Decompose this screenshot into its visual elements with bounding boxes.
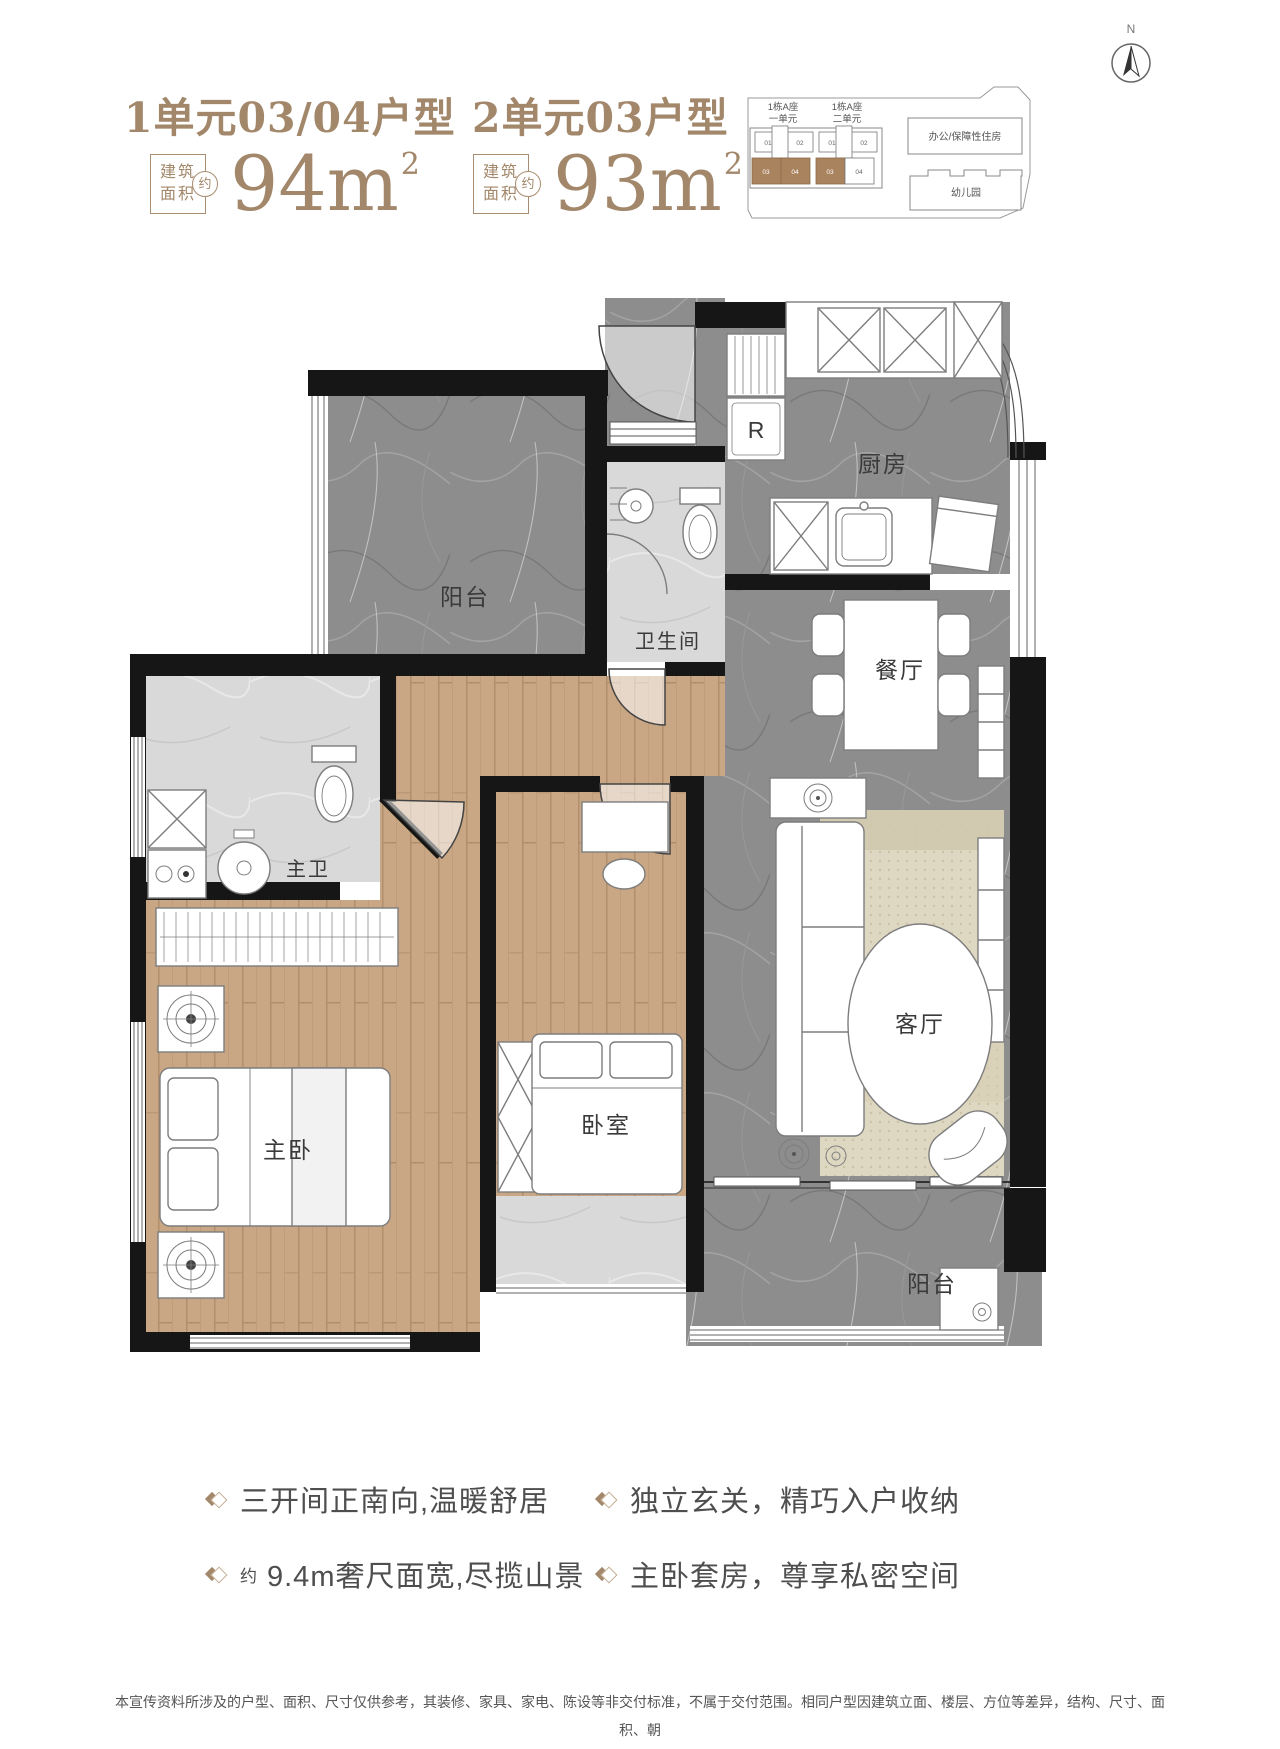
label-living: 客厅 xyxy=(895,1011,945,1037)
label-balcony-top: 阳台 xyxy=(440,584,490,610)
kindergarten-block-label: 幼儿园 xyxy=(951,186,981,199)
u2-cell-01: 01 xyxy=(828,140,836,147)
floorplan-page: 1单元03/04户型 2单元03户型 建筑 面积 约 94m2 建筑 面积 约 … xyxy=(0,0,1280,1749)
sup-2: 2 xyxy=(401,147,420,182)
unit1-block-label2: 一单元 xyxy=(769,113,798,125)
toilet xyxy=(683,505,717,559)
u1-cell-03: 03 xyxy=(762,169,770,176)
laundry-unit xyxy=(148,850,206,898)
desk xyxy=(582,802,668,852)
disclaimer-line2: 向及室内布局可能存在不同，最终以政府审批文件及双方签订的买卖合同及附件为准。本公… xyxy=(110,1744,1170,1749)
toilet xyxy=(315,766,353,822)
u1-cell-04: 04 xyxy=(791,169,799,176)
diamond-bullet-icon xyxy=(207,1491,225,1508)
pillow xyxy=(610,1042,672,1078)
dining-chair xyxy=(938,614,970,656)
unit2-block-label2: 二单元 xyxy=(833,113,862,125)
vanity-sink xyxy=(218,842,270,894)
feature-item: 主卧套房，尊享私密空间 xyxy=(597,1553,960,1595)
dishwasher xyxy=(930,496,999,572)
toilet-tank xyxy=(312,746,356,762)
diamond-bullet-icon xyxy=(597,1491,615,1508)
u2-cell-04: 04 xyxy=(855,169,863,176)
feature-text: 主卧套房，尊享私密空间 xyxy=(630,1553,960,1595)
label-master-bath: 主卫 xyxy=(286,858,330,881)
sup-2: 2 xyxy=(724,147,743,182)
shoe-cabinet xyxy=(727,334,785,396)
label-bedroom: 卧室 xyxy=(581,1112,631,1138)
floorplan-svg: 阳台 卫生间 厨房 R 餐厅 主卫 主卧 卧室 客厅 阳台 xyxy=(130,282,1050,1352)
label-balcony-bottom: 阳台 xyxy=(907,1271,957,1297)
toilet-tank xyxy=(680,488,720,504)
area-label-box: 建筑 面积 约 xyxy=(473,154,529,214)
site-keyplan: 01 02 03 04 01 02 03 04 1栋A座 一单元 1栋A座 二单… xyxy=(742,84,1034,222)
pillow xyxy=(168,1148,218,1210)
pillow xyxy=(540,1042,602,1078)
label-master-bed: 主卧 xyxy=(263,1137,313,1163)
feature-text: 9.4m奢尺面宽,尽揽山景 xyxy=(267,1553,585,1595)
label-fridge: R xyxy=(748,417,765,443)
feature-text: 三开间正南向,温暖舒居 xyxy=(240,1478,549,1520)
disclaimer: 本宣传资料所涉及的户型、面积、尺寸仅供参考，其装修、家具、家电、陈设等非交付标准… xyxy=(110,1688,1170,1749)
unit2-block-label1: 1栋A座 xyxy=(832,101,863,113)
north-label: N xyxy=(1098,22,1164,36)
unit1-block-label1: 1栋A座 xyxy=(768,101,799,113)
pillow xyxy=(168,1078,218,1140)
entry-threshold xyxy=(610,422,696,444)
unit2-area-badge: 建筑 面积 约 93m2 xyxy=(473,146,743,222)
dining-chair xyxy=(812,614,844,656)
unit2-area-value: 93m2 xyxy=(553,146,743,222)
feature-item: 独立玄关，精巧入户收纳 xyxy=(597,1478,960,1520)
label-kitchen: 厨房 xyxy=(858,451,908,477)
desk-chair xyxy=(603,859,645,889)
label-bath: 卫生间 xyxy=(635,630,701,653)
unit1-area-badge: 建筑 面积 约 94m2 xyxy=(150,146,420,222)
unit1-title: 1单元03/04户型 xyxy=(124,84,456,144)
compass-svg xyxy=(1098,36,1164,94)
feature-item: 三开间正南向,温暖舒居 xyxy=(207,1478,549,1520)
bath-sink xyxy=(619,489,653,523)
area-label-box: 建筑 面积 约 xyxy=(150,154,206,214)
dining-chair xyxy=(812,674,844,716)
approx-circle: 约 xyxy=(192,171,218,197)
sofa xyxy=(776,822,864,1136)
feature-text: 独立玄关，精巧入户收纳 xyxy=(630,1478,960,1520)
diamond-bullet-icon xyxy=(597,1566,615,1583)
office-block-label: 办公/保障性住房 xyxy=(929,130,1002,143)
dining-chair xyxy=(938,674,970,716)
disclaimer-line1: 本宣传资料所涉及的户型、面积、尺寸仅供参考，其装修、家具、家电、陈设等非交付标准… xyxy=(110,1688,1170,1744)
north-arrow-icon: N xyxy=(1098,22,1164,96)
unit2-title: 2单元03户型 xyxy=(472,84,729,144)
keyplan-svg: 01 02 03 04 01 02 03 04 1栋A座 一单元 1栋A座 二单… xyxy=(742,84,1034,222)
feature-prefix: 约 xyxy=(240,1562,258,1587)
feature-item: 约 9.4m奢尺面宽,尽揽山景 xyxy=(207,1553,585,1595)
u2-cell-02: 02 xyxy=(860,140,868,147)
u1-cell-02: 02 xyxy=(796,140,804,147)
unit1-area-value: 94m2 xyxy=(230,146,420,222)
u2-cell-03: 03 xyxy=(826,169,834,176)
label-dining: 餐厅 xyxy=(875,657,925,683)
u1-cell-01: 01 xyxy=(764,140,772,147)
diamond-bullet-icon xyxy=(207,1566,225,1583)
approx-circle: 约 xyxy=(515,171,541,197)
